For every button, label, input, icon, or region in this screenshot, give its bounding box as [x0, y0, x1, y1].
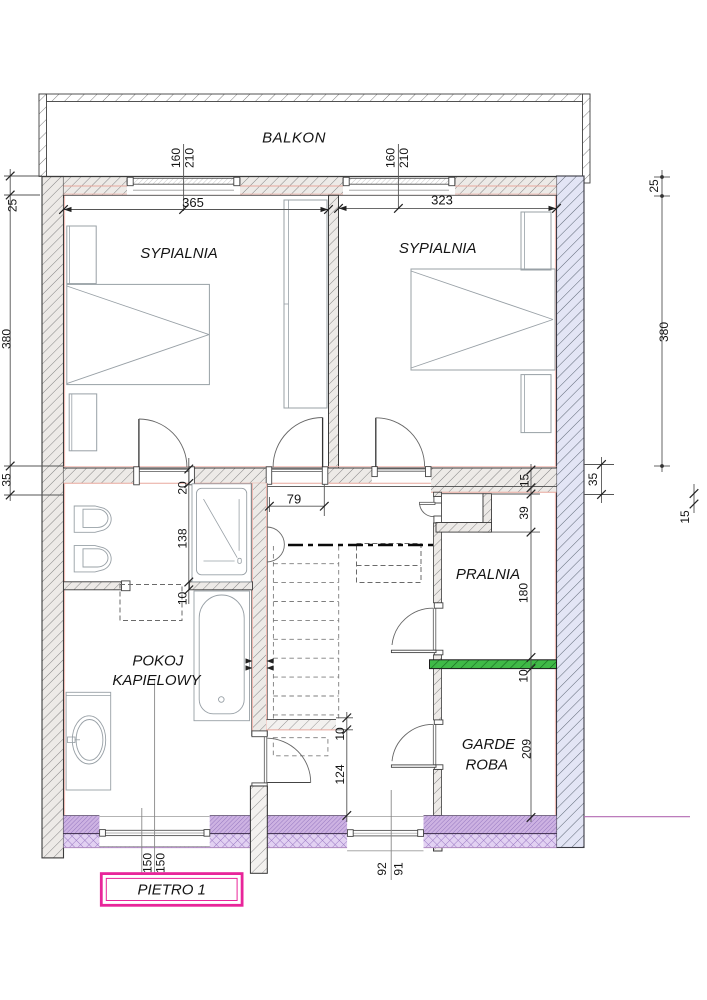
svg-text:39: 39 [517, 506, 531, 520]
svg-text:380: 380 [0, 329, 14, 349]
svg-text:GARDE: GARDE [462, 736, 516, 753]
svg-text:SYPIALNIA: SYPIALNIA [399, 240, 477, 257]
svg-text:25: 25 [647, 179, 661, 193]
svg-text:35: 35 [586, 473, 600, 487]
svg-text:92: 92 [375, 862, 389, 876]
svg-text:150: 150 [153, 853, 167, 873]
svg-text:PRALNIA: PRALNIA [456, 566, 520, 583]
svg-text:365: 365 [182, 195, 204, 210]
svg-text:209: 209 [520, 739, 534, 759]
svg-text:150: 150 [140, 853, 154, 873]
svg-text:380: 380 [657, 322, 671, 342]
svg-text:10: 10 [333, 727, 347, 741]
svg-text:BALKON: BALKON [262, 130, 326, 147]
svg-text:PIETRO 1: PIETRO 1 [138, 882, 206, 899]
svg-text:KAPIELOWY: KAPIELOWY [112, 672, 201, 689]
svg-text:91: 91 [392, 862, 406, 876]
svg-text:15: 15 [518, 474, 532, 488]
svg-text:10: 10 [176, 592, 190, 606]
svg-text:210: 210 [397, 148, 411, 168]
svg-text:ROBA: ROBA [465, 756, 508, 773]
svg-text:124: 124 [333, 764, 347, 784]
svg-text:323: 323 [431, 193, 453, 208]
svg-text:180: 180 [517, 583, 531, 603]
svg-text:35: 35 [0, 473, 14, 487]
svg-text:20: 20 [176, 481, 190, 495]
svg-text:160: 160 [384, 148, 398, 168]
svg-text:SYPIALNIA: SYPIALNIA [140, 245, 218, 262]
svg-text:10: 10 [517, 669, 531, 683]
svg-text:15: 15 [678, 510, 692, 524]
svg-text:210: 210 [183, 148, 197, 168]
svg-text:79: 79 [287, 492, 301, 507]
svg-text:138: 138 [176, 528, 190, 548]
svg-text:160: 160 [169, 148, 183, 168]
svg-text:25: 25 [6, 199, 20, 213]
svg-text:POKOJ: POKOJ [132, 653, 183, 670]
